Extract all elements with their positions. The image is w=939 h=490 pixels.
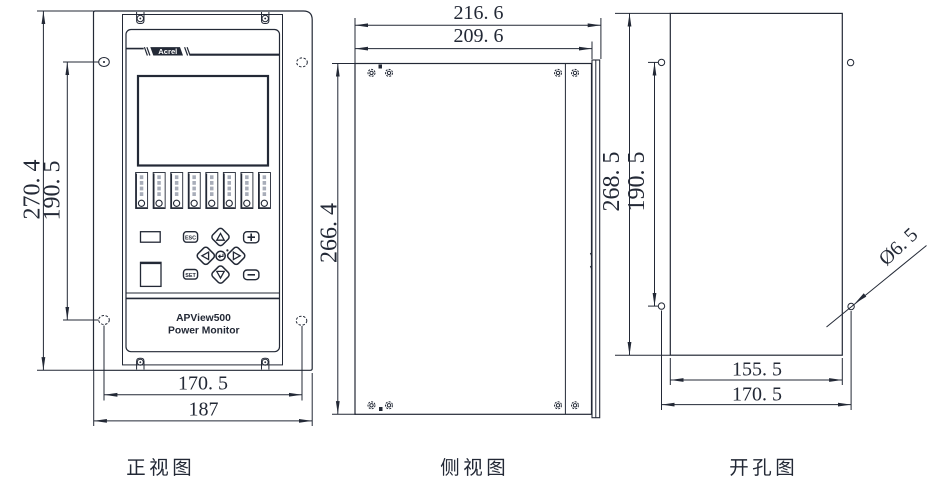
svg-text:216. 6: 216. 6 bbox=[454, 2, 504, 24]
svg-text:190. 5: 190. 5 bbox=[39, 161, 65, 221]
svg-text:APView500: APView500 bbox=[176, 313, 231, 324]
svg-text:Power Monitor: Power Monitor bbox=[168, 325, 240, 336]
svg-text:155. 5: 155. 5 bbox=[732, 359, 782, 381]
svg-text:ESC: ESC bbox=[185, 236, 196, 242]
svg-text:209. 6: 209. 6 bbox=[454, 25, 504, 47]
svg-text:Acrel: Acrel bbox=[158, 47, 177, 56]
svg-text:SET: SET bbox=[185, 273, 196, 279]
svg-text:266. 4: 266. 4 bbox=[316, 203, 342, 263]
svg-text:170. 5: 170. 5 bbox=[732, 384, 782, 406]
svg-text:190. 5: 190. 5 bbox=[624, 152, 650, 212]
svg-text:170. 5: 170. 5 bbox=[178, 373, 228, 395]
svg-text:268. 5: 268. 5 bbox=[599, 152, 625, 212]
svg-text:187: 187 bbox=[189, 399, 219, 421]
